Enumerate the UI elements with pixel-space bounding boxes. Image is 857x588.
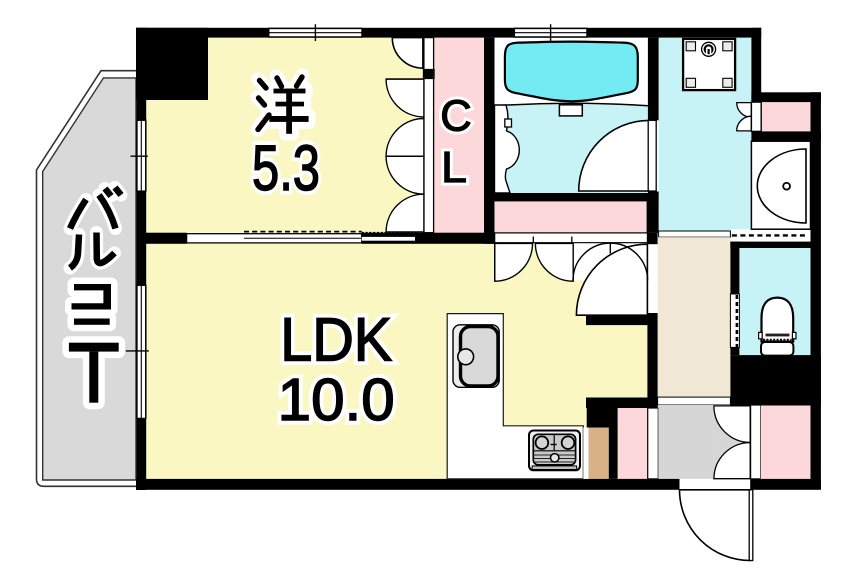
- svg-text:C: C: [440, 91, 472, 140]
- svg-text:L: L: [441, 143, 467, 192]
- svg-text:LDK: LDK: [280, 306, 392, 374]
- svg-text:10.0: 10.0: [278, 367, 395, 433]
- svg-text:5.3: 5.3: [252, 132, 320, 204]
